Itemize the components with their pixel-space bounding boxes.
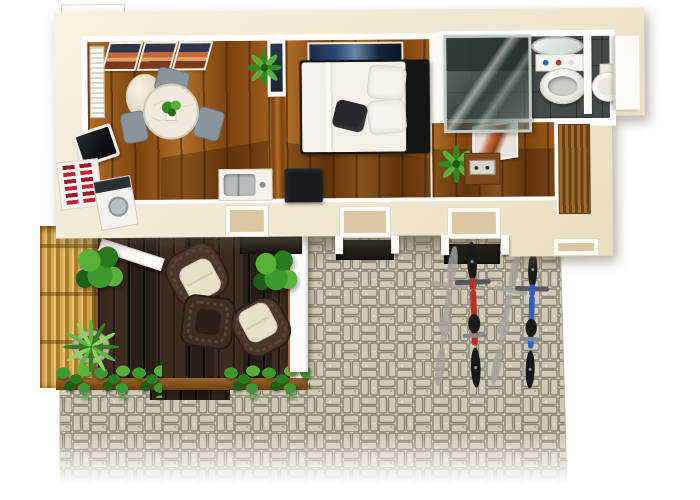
sink-basin <box>223 174 255 196</box>
pedestal-washbasin <box>540 68 586 104</box>
pillow-2 <box>366 98 407 135</box>
window-sill-1 <box>225 205 269 237</box>
wall-stub <box>441 235 449 255</box>
side-table <box>464 153 500 185</box>
radio <box>469 160 495 175</box>
wall-stub <box>335 236 343 254</box>
toilet-partition-wall <box>583 36 592 114</box>
window-sill-3 <box>447 207 501 239</box>
pillow-1 <box>366 64 407 101</box>
bedroom-hall-wall <box>429 37 444 123</box>
black-ottoman <box>284 168 322 202</box>
wall-stub <box>501 235 509 255</box>
window-sill-4 <box>553 238 599 256</box>
wall-radiator <box>89 46 105 118</box>
living-potted-plant <box>247 51 281 85</box>
bathroom-door <box>613 35 640 109</box>
wall-stub <box>391 236 399 254</box>
faucet <box>260 182 266 188</box>
dining-set <box>116 65 229 164</box>
basin-bowl <box>548 76 578 96</box>
glass-shower <box>443 34 532 133</box>
window-sill-2 <box>339 206 391 238</box>
building <box>0 0 700 500</box>
counter-with-sink <box>218 169 272 201</box>
floorplan-3d-render <box>0 0 700 500</box>
wood-slat-bench <box>558 124 591 214</box>
shower-glass-glint <box>446 37 529 130</box>
